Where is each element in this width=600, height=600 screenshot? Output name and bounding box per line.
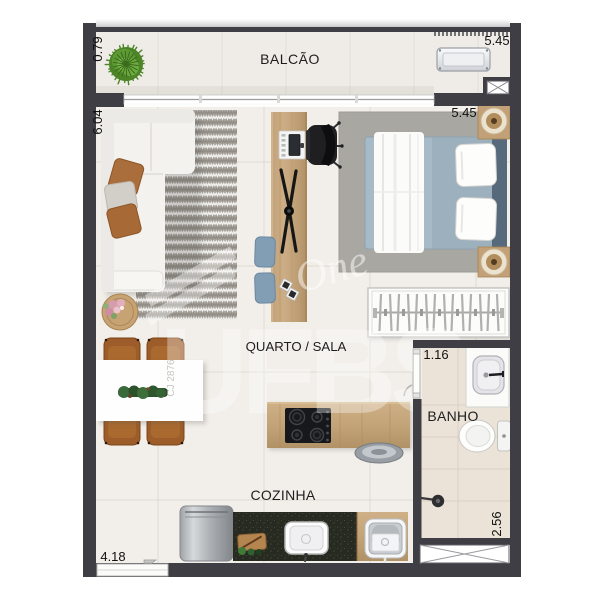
svg-text:BANHO: BANHO bbox=[427, 408, 478, 424]
svg-text:QUARTO / SALA: QUARTO / SALA bbox=[246, 339, 347, 354]
svg-text:0.79: 0.79 bbox=[90, 36, 105, 61]
svg-text:6.04: 6.04 bbox=[90, 109, 105, 134]
svg-text:CJ 2876: CJ 2876 bbox=[166, 359, 177, 397]
svg-text:COZINHA: COZINHA bbox=[250, 487, 315, 503]
svg-text:5.45: 5.45 bbox=[451, 105, 476, 120]
svg-text:BALCÃO: BALCÃO bbox=[260, 51, 320, 67]
svg-text:1.16: 1.16 bbox=[423, 347, 448, 362]
svg-text:2.56: 2.56 bbox=[489, 511, 504, 536]
svg-text:5.45: 5.45 bbox=[484, 33, 509, 48]
svg-text:4.18: 4.18 bbox=[100, 549, 125, 564]
